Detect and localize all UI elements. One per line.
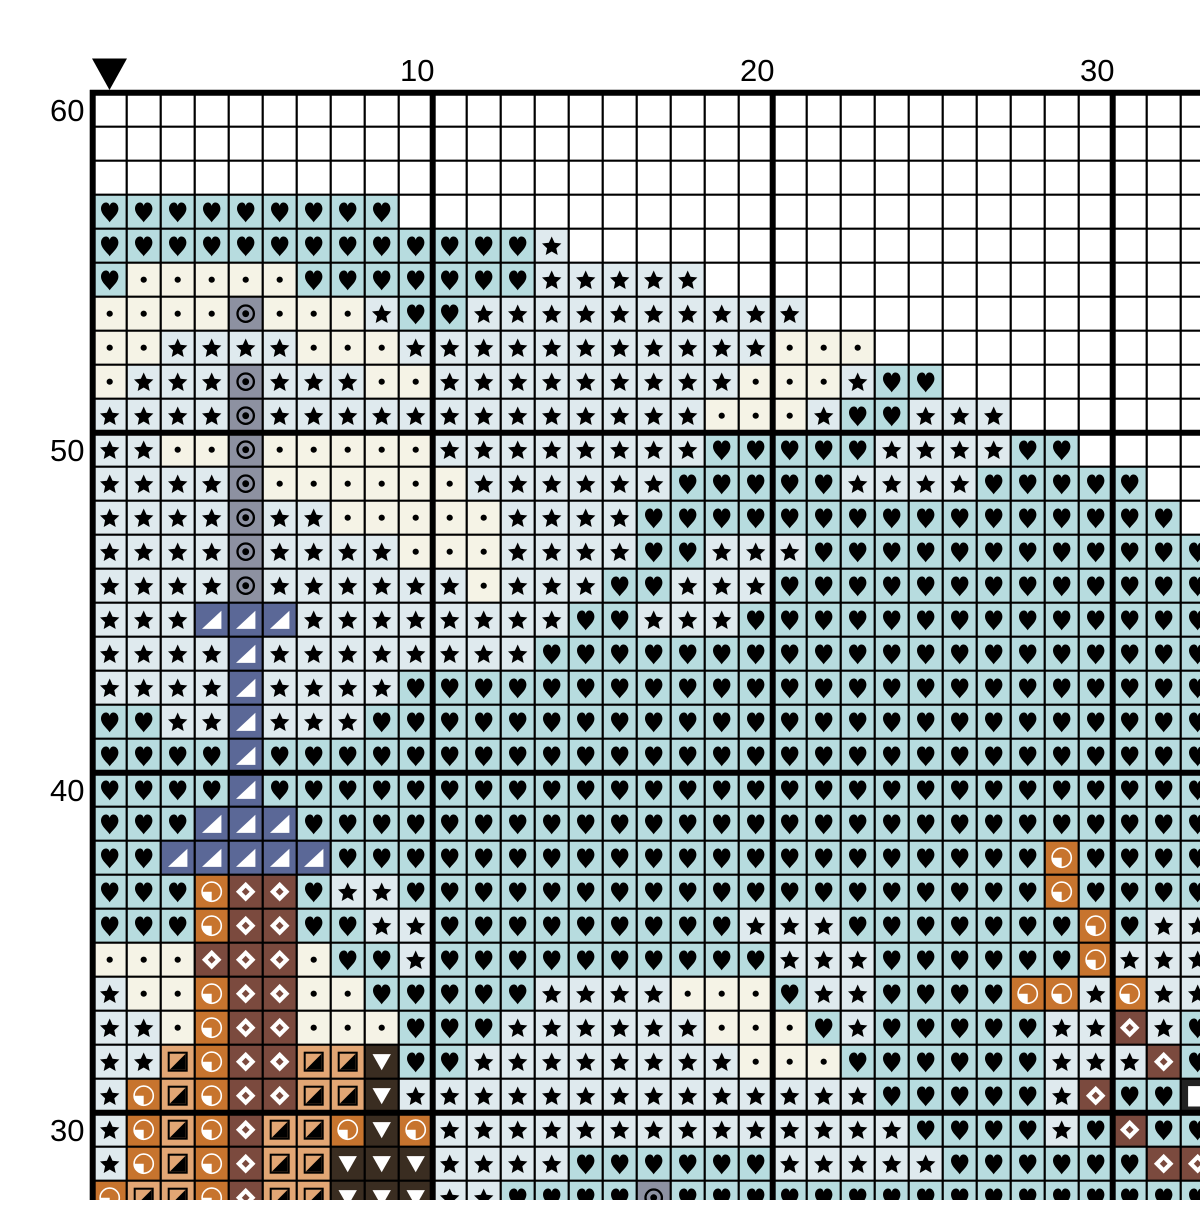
svg-text:20: 20: [740, 53, 774, 88]
svg-text:50: 50: [50, 433, 84, 468]
svg-text:30: 30: [50, 1113, 84, 1148]
svg-text:30: 30: [1080, 53, 1114, 88]
svg-text:10: 10: [400, 53, 434, 88]
svg-text:40: 40: [50, 773, 84, 808]
svg-text:60: 60: [50, 93, 84, 128]
